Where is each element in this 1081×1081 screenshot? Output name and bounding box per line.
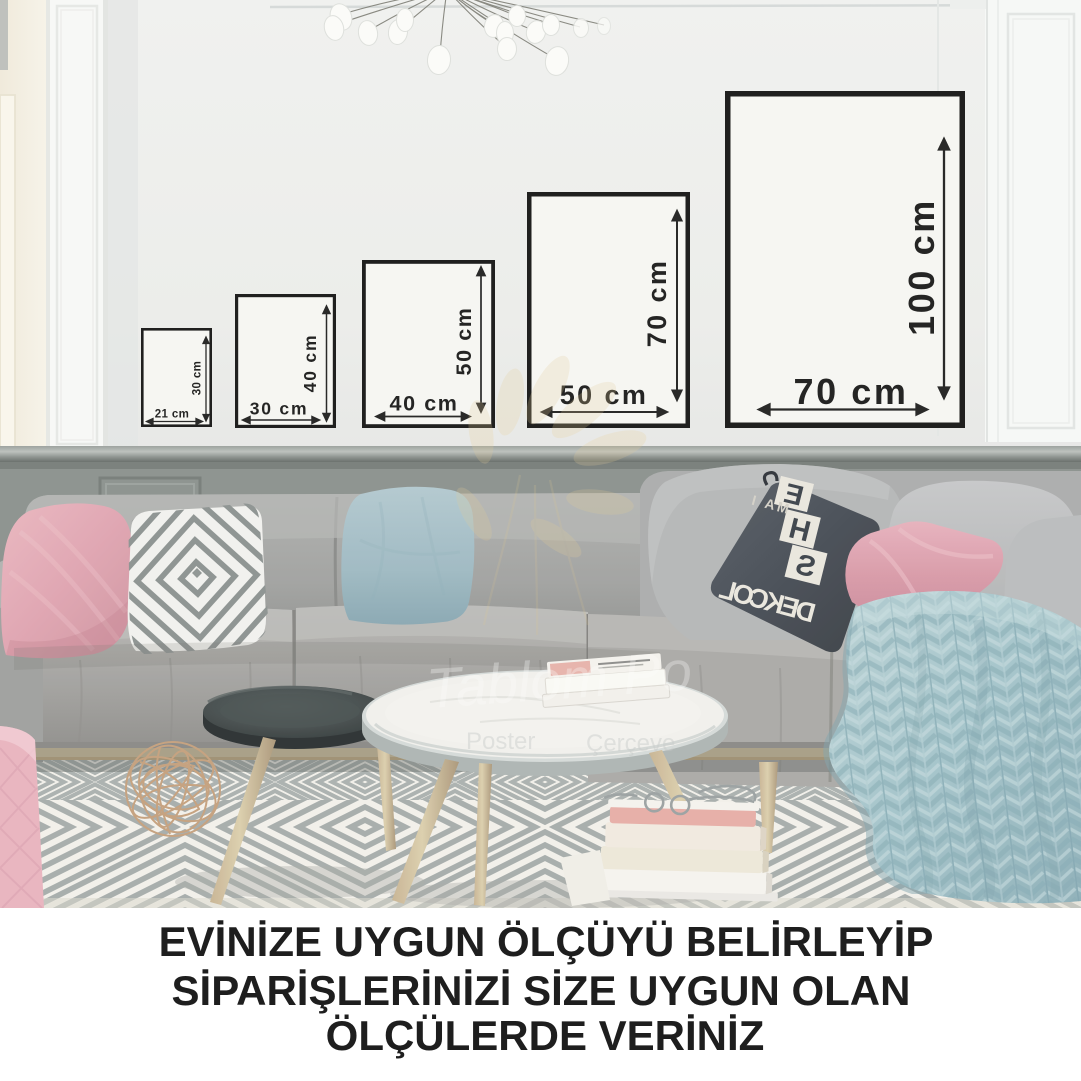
- svg-text:EVİNİZE UYGUN ÖLÇÜYÜ BELİRLEYİ: EVİNİZE UYGUN ÖLÇÜYÜ BELİRLEYİP: [159, 918, 934, 965]
- svg-text:ÖLÇÜLERDE VERİNİZ: ÖLÇÜLERDE VERİNİZ: [326, 1012, 765, 1059]
- svg-text:SİPARİŞLERİNİZİ SİZE UYGUN OLA: SİPARİŞLERİNİZİ SİZE UYGUN OLAN: [172, 967, 911, 1014]
